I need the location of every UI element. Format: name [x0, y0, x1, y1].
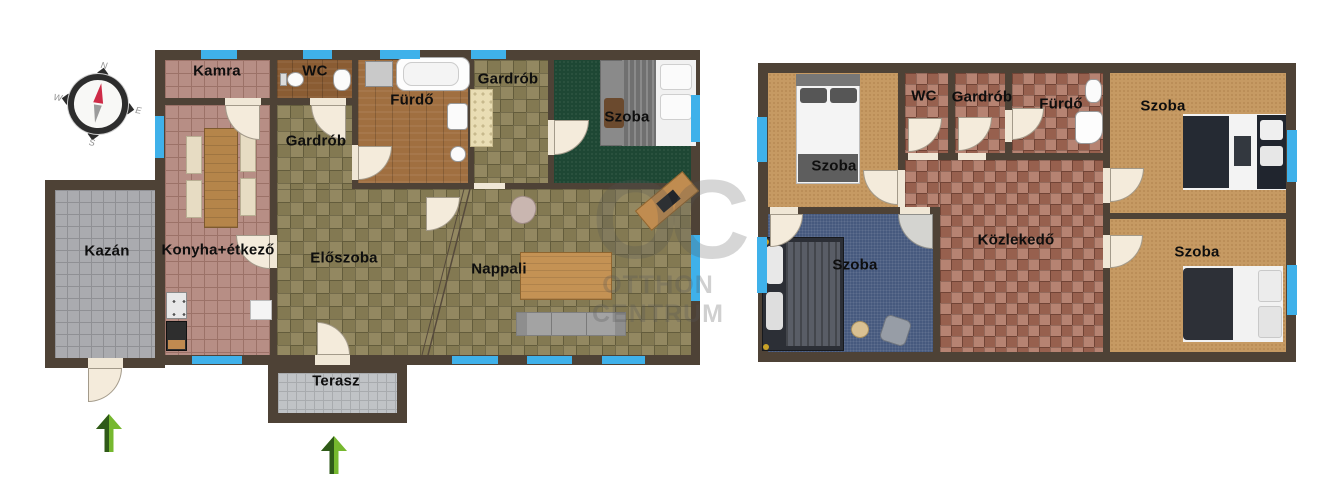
compass-ring: [64, 70, 133, 139]
bed-pillow: [766, 292, 783, 330]
window: [1287, 130, 1297, 182]
room-label-eloszoba: Előszoba: [310, 250, 377, 267]
door-opening: [770, 207, 798, 214]
washbasin: [333, 69, 351, 91]
window: [1287, 265, 1297, 315]
room-label-szoba1: Szoba: [604, 109, 649, 126]
room-label-furdo2: Fürdő: [1039, 96, 1083, 113]
door-opening: [225, 98, 261, 105]
room-label-konyha: Konyha+étkező: [161, 242, 274, 259]
entrance-arrow: [96, 414, 122, 452]
bed-drape: [622, 60, 658, 146]
room-label-gardrob1: Gardrób: [286, 133, 347, 150]
room-label-wc2: WC: [911, 88, 936, 105]
door-opening: [474, 183, 505, 189]
bed-pillow: [1258, 270, 1282, 302]
room-label-kozlekedo: Közlekedő: [978, 232, 1055, 249]
bed-blanket: [1183, 116, 1229, 188]
door-opening: [958, 153, 986, 160]
washbasin: [447, 103, 468, 130]
bed-pillow: [830, 88, 857, 103]
room-label-szoba-br: Szoba: [1174, 244, 1219, 261]
window: [602, 356, 645, 364]
bed-lamp: [763, 344, 769, 350]
shower-tray: [1075, 111, 1103, 144]
door-opening: [1005, 110, 1012, 142]
bed-pillow: [660, 64, 692, 90]
szoba-tr-br-partition: [1110, 213, 1286, 219]
entrance-arrow: [321, 436, 347, 474]
toilet: [450, 146, 466, 162]
room-kozlekedo-arm-floor: [905, 160, 940, 207]
washbasin: [1085, 79, 1102, 103]
compass-rose: N E S W: [51, 57, 145, 151]
bed-pillow: [800, 88, 827, 103]
room-label-furdo1: Fürdő: [390, 92, 434, 109]
bathtub-basin: [403, 62, 459, 86]
room-label-nappali: Nappali: [471, 261, 527, 278]
room-label-kamra: Kamra: [193, 63, 241, 80]
room-label-kazan: Kazán: [84, 243, 129, 260]
door-opening: [908, 153, 938, 160]
bed-pillow: [1258, 306, 1282, 338]
room-label-gardrob3: Gardrób: [952, 89, 1013, 106]
kitchen-cabinet: [168, 340, 185, 349]
sofa: [516, 312, 626, 336]
window: [155, 116, 164, 158]
room-label-szoba-tr: Szoba: [1140, 98, 1185, 115]
fridge: [250, 300, 272, 320]
room-kazan-floor: [55, 190, 155, 358]
floorplan-canvas: N E S W: [0, 0, 1322, 500]
dining-chair: [186, 180, 202, 218]
door-opening: [898, 170, 905, 207]
room-label-wc1: WC: [302, 63, 327, 80]
window: [452, 356, 498, 364]
bed-pillow: [1260, 120, 1283, 140]
dining-chair: [240, 134, 256, 172]
room-label-szoba-tl: Szoba: [811, 158, 856, 175]
compass-label-s: S: [88, 137, 96, 148]
compass-label-e: E: [135, 105, 143, 116]
room-kozlekedo-floor: [940, 160, 1103, 352]
door-opening: [315, 355, 350, 365]
door-opening: [1103, 168, 1110, 203]
coffee-table: [520, 252, 612, 300]
window: [303, 50, 332, 59]
dining-chair: [240, 178, 256, 216]
door-opening: [310, 98, 346, 105]
window: [380, 50, 420, 59]
toilet: [280, 73, 287, 86]
window: [201, 50, 237, 59]
door-opening: [900, 207, 930, 214]
bed-headboard: [796, 74, 860, 86]
window: [691, 235, 700, 301]
door-opening: [88, 358, 123, 368]
stove: [166, 292, 187, 319]
bed-blanket: [1183, 268, 1233, 340]
room-label-terasz: Terasz: [312, 373, 360, 390]
washing-machine: [365, 61, 393, 87]
tufted-bench: [470, 89, 493, 147]
window: [757, 117, 767, 162]
dining-table: [204, 128, 238, 228]
dining-chair: [186, 136, 202, 174]
window: [527, 356, 572, 364]
stool: [851, 321, 869, 338]
room-label-gardrob2: Gardrób: [478, 71, 539, 88]
window: [471, 50, 506, 59]
door-opening: [1103, 235, 1110, 268]
window: [192, 356, 242, 364]
laptop: [656, 189, 681, 212]
window: [757, 237, 767, 293]
bed-pillow: [766, 246, 783, 284]
window: [691, 95, 700, 142]
compass-label-w: W: [53, 92, 63, 103]
bed-pillow: [660, 94, 692, 120]
room-label-szoba-bl: Szoba: [832, 257, 877, 274]
compass-label-n: N: [100, 60, 108, 71]
bed-runner: [1234, 136, 1251, 166]
door-arc: [88, 368, 122, 402]
bed-pillow: [1260, 146, 1283, 166]
